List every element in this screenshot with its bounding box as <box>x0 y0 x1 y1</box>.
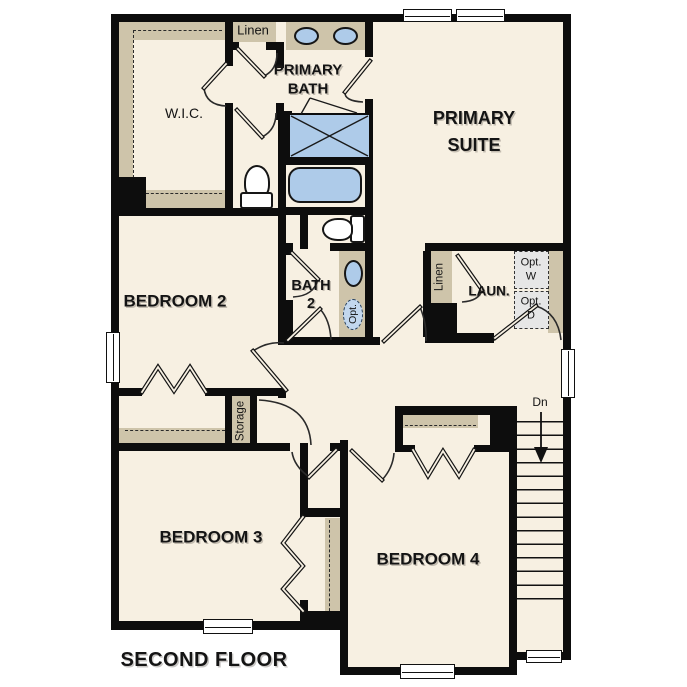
wic-shelf-top <box>119 22 225 40</box>
wall-hall-bottom-stub <box>330 443 348 451</box>
wall-b4closet-jamb-r <box>474 445 490 452</box>
wall-bath2-nook-left <box>300 215 308 249</box>
wall-laundry-top <box>425 243 571 251</box>
bedroom3-closet-shelf <box>325 518 340 620</box>
wall-vestibule-bath-lower <box>276 103 284 120</box>
wall-left <box>111 14 119 630</box>
wall-tubroom-bottom <box>278 207 373 215</box>
wall-bedroom4-right <box>509 448 517 675</box>
wall-bath2-bottom <box>285 337 380 345</box>
label-floor-title: SECOND FLOOR <box>120 650 287 670</box>
window-bedroom2 <box>106 332 120 383</box>
wall-bath2-left-upper <box>285 243 293 255</box>
label-primary-bath-1: PRIMARY <box>274 63 343 78</box>
bath2-sink <box>344 260 363 287</box>
label-laundry: LAUN. <box>468 284 509 298</box>
wic-rod-left <box>133 30 134 178</box>
wall-wic-right-upper <box>225 16 233 66</box>
label-primary-suite-1: PRIMARY <box>433 109 515 127</box>
window-suite-left <box>403 9 452 22</box>
wall-bedroom4-left <box>340 440 348 675</box>
wall-bath2-nook-bottom <box>330 243 371 251</box>
wall-hall-bottom-left <box>119 443 290 451</box>
primary-sink-right <box>333 27 358 45</box>
window-suite-right <box>456 9 505 22</box>
wall-bedroom2-right-upper <box>278 216 286 345</box>
wall-bedroom3-right-lower <box>300 600 308 628</box>
laundry-corner-block <box>425 303 457 337</box>
label-bedroom2: BEDROOM 2 <box>124 293 227 310</box>
wall-storage-right <box>250 396 257 448</box>
wall-wic-right-lower <box>225 103 233 216</box>
label-bath2-2: 2 <box>307 297 315 312</box>
wall-bedroom2-bottom-left <box>111 388 142 396</box>
wic-rod-bottom <box>146 193 222 194</box>
window-bedroom4 <box>400 664 455 679</box>
floor-plan: Linen PRIMARY BATH W.I.C. PRIMARY SUITE … <box>0 0 687 687</box>
primary-sink-left <box>294 27 319 45</box>
wic-corner-block <box>115 177 146 208</box>
toilet-primary-tank <box>240 192 273 209</box>
window-stairs-bottom <box>526 650 562 663</box>
window-bedroom3 <box>203 619 253 634</box>
wall-linen-jamb-left <box>231 42 239 50</box>
stair-corner-block <box>490 406 517 452</box>
label-stairs-down: Dn <box>532 396 547 408</box>
shower <box>288 113 371 159</box>
bedroom4-closet-rod <box>405 425 476 426</box>
label-opt-d-1: Opt. <box>521 297 542 308</box>
label-linen-laundry: Linen <box>434 263 446 291</box>
label-linen-top: Linen <box>237 24 269 37</box>
wall-right <box>563 14 571 660</box>
wall-bedroom2-bottom-right <box>205 388 286 396</box>
label-opt-sink: Opt. <box>348 304 359 324</box>
label-opt-w-2: W <box>526 272 536 283</box>
bathtub <box>288 167 362 203</box>
wall-b4closet-jamb-l <box>403 445 415 452</box>
label-bath2-1: BATH <box>291 279 330 294</box>
label-primary-suite-2: SUITE <box>447 136 500 154</box>
wall-bedroom3-right-upper <box>300 443 308 513</box>
bedroom2-closet-rod <box>125 430 225 431</box>
label-bedroom3: BEDROOM 3 <box>160 529 263 546</box>
wall-laundry-bottom <box>425 333 494 343</box>
label-wic: W.I.C. <box>165 106 203 120</box>
bedroom4-closet-shelf <box>403 415 478 428</box>
window-stair-landing-right <box>561 349 575 398</box>
toilet-bath2-bowl <box>322 218 353 241</box>
wall-suite-upper <box>365 14 373 57</box>
bedroom3-closet-rod <box>329 520 330 616</box>
label-bedroom4: BEDROOM 4 <box>377 551 480 568</box>
wall-wic-bottom <box>111 208 286 216</box>
wic-rod-top <box>133 30 222 31</box>
label-opt-d-2: D <box>527 311 535 322</box>
label-storage: Storage <box>235 401 247 441</box>
wic-shelf-left <box>119 40 133 180</box>
wall-b4closet-left <box>395 406 403 452</box>
label-primary-bath-2: BATH <box>288 82 329 97</box>
label-opt-w-1: Opt. <box>521 258 542 269</box>
stair-treads <box>517 409 563 602</box>
